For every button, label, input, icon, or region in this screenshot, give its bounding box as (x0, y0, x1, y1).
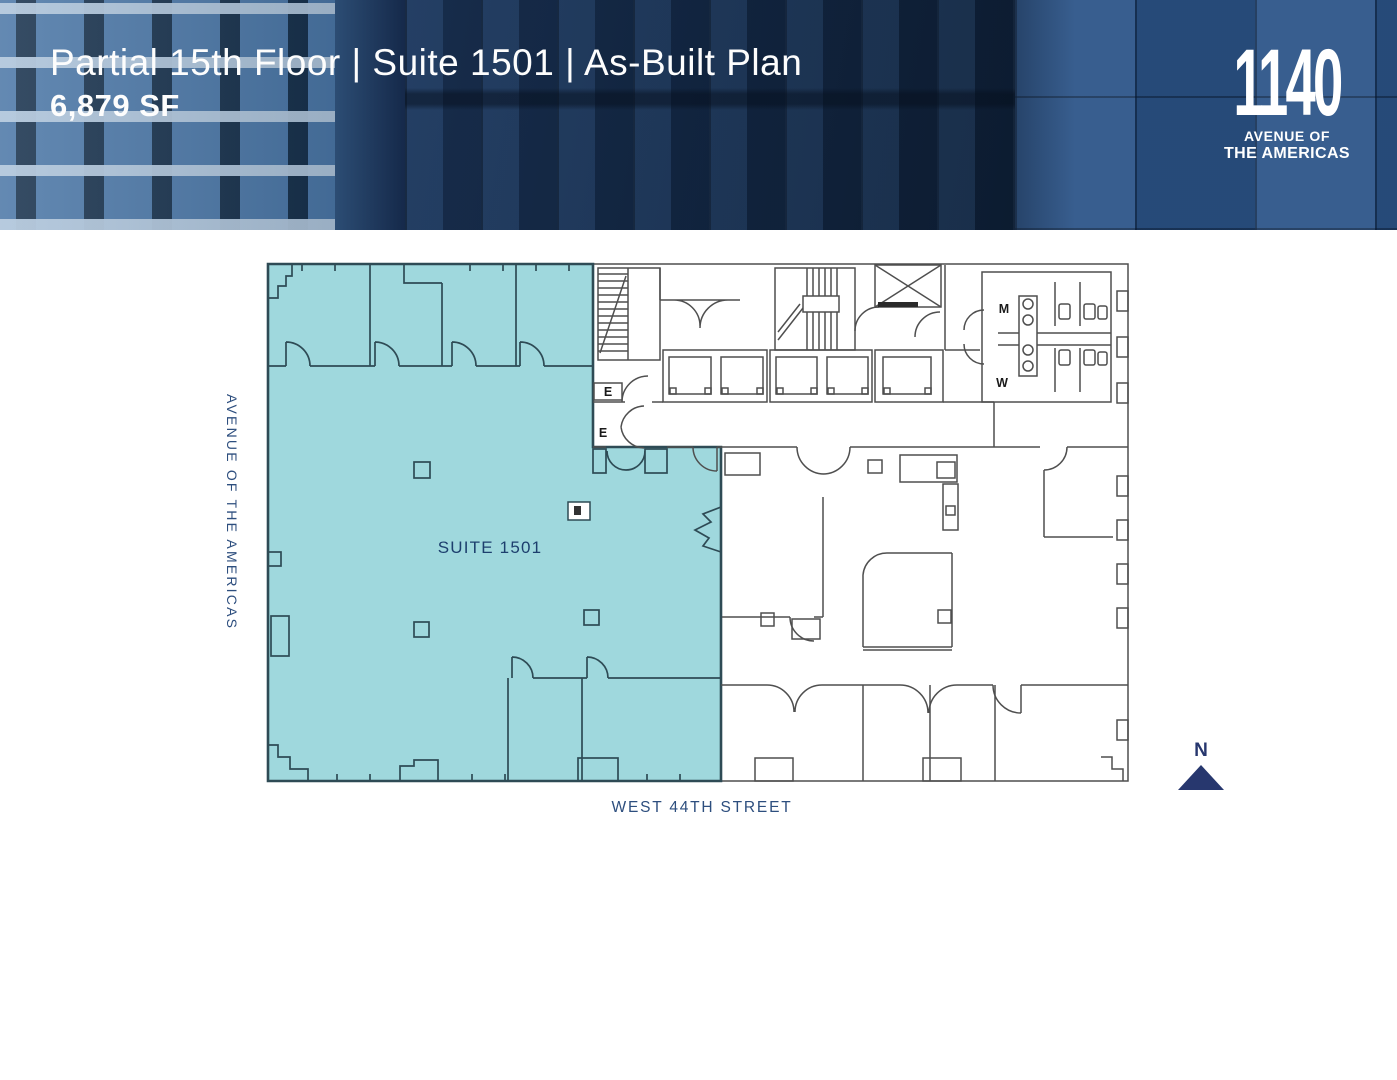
stair-elevator-label: E (604, 385, 612, 399)
restrooms (964, 272, 1111, 402)
shaft-sill (878, 302, 918, 307)
north-label: N (1175, 740, 1227, 762)
logo-line2: THE AMERICAS (1206, 145, 1368, 163)
floor-plan: SUITE 1501 E E M W (262, 256, 1142, 788)
header-banner: Partial 15th Floor | Suite 1501 | As-Bui… (0, 0, 1397, 230)
suite-1501-area (268, 264, 721, 781)
column (414, 622, 429, 637)
building-logo: 1140 AVENUE OF THE AMERICAS (1206, 36, 1368, 163)
shaft-icon (574, 506, 581, 515)
north-indicator: N (1175, 740, 1227, 790)
column (414, 462, 430, 478)
north-arrow-icon (1178, 765, 1224, 790)
floor-plan-drawing: SUITE 1501 E E M W (262, 256, 1142, 788)
suite-label: SUITE 1501 (438, 538, 543, 557)
area-subtitle: 6,879 SF (50, 88, 802, 124)
column (584, 610, 599, 625)
corridor-elevator-label: E (599, 426, 607, 440)
mens-room-label: M (999, 302, 1009, 316)
logo-number: 1140 (1232, 36, 1342, 130)
page-title: Partial 15th Floor | Suite 1501 | As-Bui… (50, 42, 802, 84)
west-44th-street-label: WEST 44TH STREET (262, 799, 1142, 817)
avenue-of-the-americas-label: AVENUE OF THE AMERICAS (224, 394, 240, 674)
womens-room-label: W (996, 376, 1008, 390)
